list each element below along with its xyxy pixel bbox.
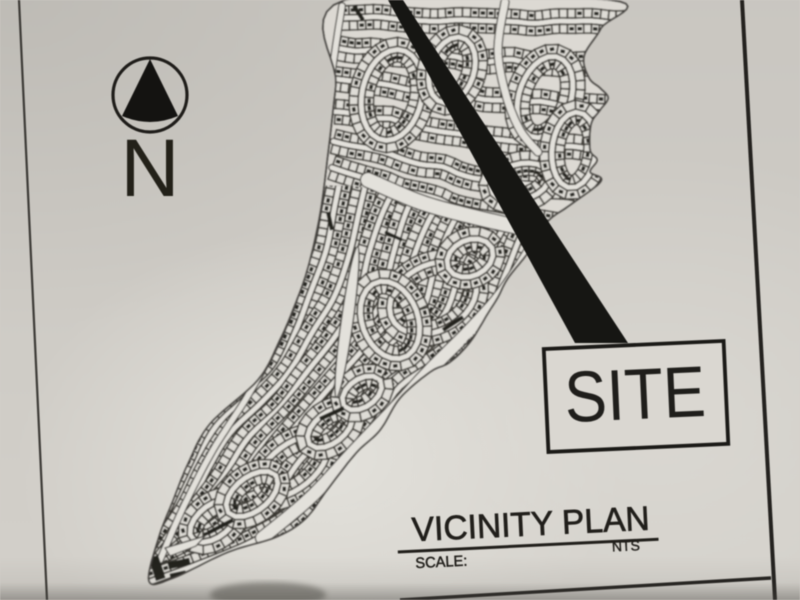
- svg-text:NTS: NTS: [611, 537, 640, 554]
- svg-text:SITE: SITE: [563, 352, 707, 438]
- svg-text:N: N: [120, 123, 179, 214]
